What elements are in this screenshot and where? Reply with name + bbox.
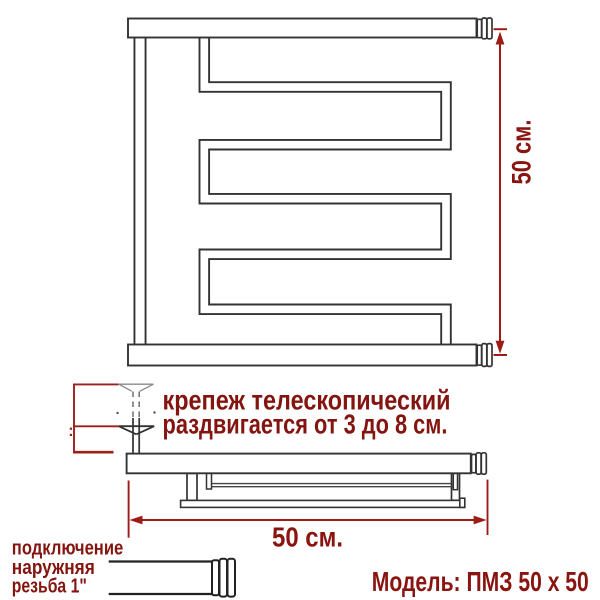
svg-text:Модель: ПМЗ 50 x 50: Модель: ПМЗ 50 x 50 xyxy=(372,566,589,597)
svg-text:резьба 1": резьба 1" xyxy=(12,576,87,598)
svg-text:50 см.: 50 см. xyxy=(507,120,537,185)
svg-text:50 см.: 50 см. xyxy=(272,522,343,553)
svg-text:подключение: подключение xyxy=(12,537,124,559)
svg-text:раздвигается от 3 до 8 см.: раздвигается от 3 до 8 см. xyxy=(163,409,448,440)
